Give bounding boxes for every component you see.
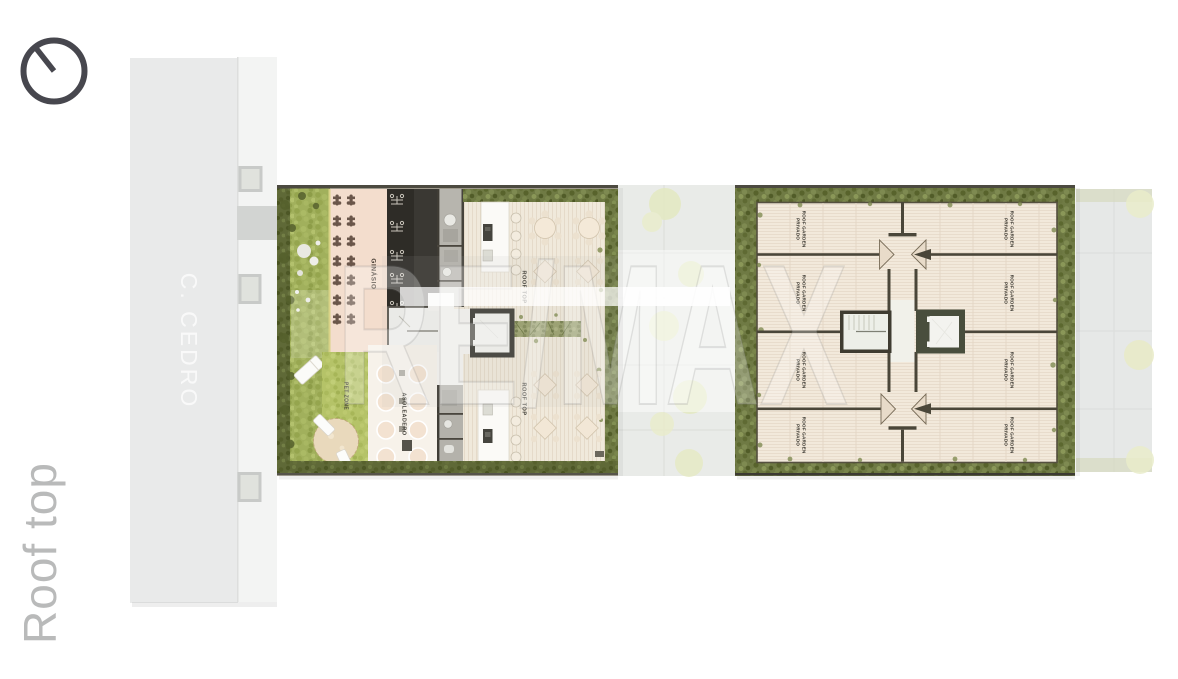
svg-text:Roof top: Roof top: [14, 462, 66, 644]
svg-text:ROOF GARDEN: ROOF GARDEN: [1010, 275, 1015, 312]
svg-text:PRIVADO: PRIVADO: [1003, 218, 1008, 240]
svg-text:PRIVADO: PRIVADO: [1003, 424, 1008, 446]
svg-text:ROOF GARDEN: ROOF GARDEN: [1010, 417, 1015, 454]
svg-text:ROOF GARDEN: ROOF GARDEN: [1010, 352, 1015, 389]
svg-text:ROOF GARDEN: ROOF GARDEN: [1010, 211, 1015, 248]
svg-text:RE/MAX: RE/MAX: [336, 223, 847, 446]
svg-text:C. CEDRO: C. CEDRO: [176, 273, 202, 409]
svg-text:PRIVADO: PRIVADO: [1003, 359, 1008, 381]
svg-text:PRIVADO: PRIVADO: [1003, 282, 1008, 304]
